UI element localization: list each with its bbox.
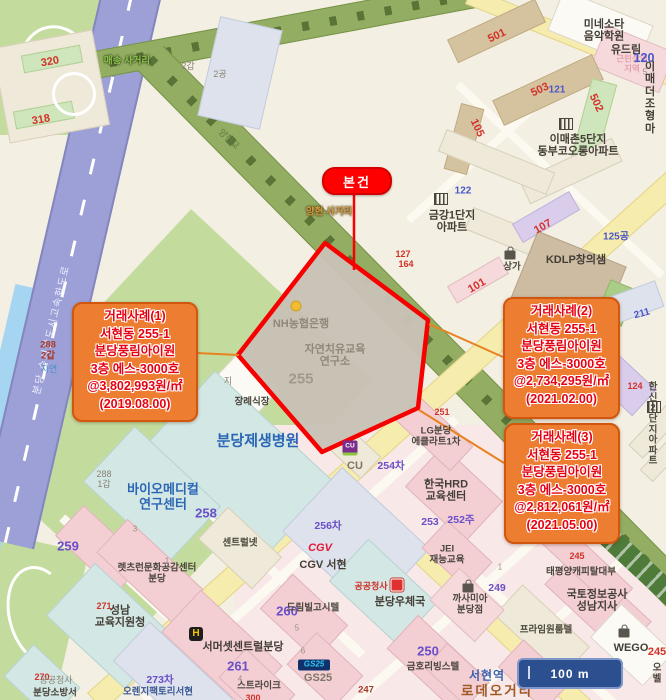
sale-case-line: (2021.02.00) — [506, 391, 617, 409]
sale-case-2-callout: 거래사례(2) 서현동 255-1분당풍림아이원3층 에스-3000호@2,73… — [503, 297, 620, 419]
map-canvas[interactable]: 3203182갑2공매송 사거리양현교양현 사거리분당 수서간도시고속화도로28… — [0, 0, 666, 700]
sale-case-line: 서현동 255-1 — [507, 447, 617, 465]
sale-case-line: 3층 에스-3000호 — [506, 356, 617, 374]
sale-case-details: 서현동 255-1분당풍림아이원3층 에스-3000호@2,734,295원/㎡… — [506, 321, 617, 409]
parcel-127: 127 — [395, 249, 410, 259]
sale-case-line: 서현동 255-1 — [75, 326, 195, 344]
sale-case-3-callout: 거래사례(3) 서현동 255-1분당풍림아이원3층 에스-3000호@2,81… — [504, 423, 620, 544]
parcel-122: 122 — [455, 185, 472, 196]
sale-case-1-callout: 거래사례(1) 서현동 255-1분당풍림아이원3층 에스-3000호@3,80… — [72, 302, 198, 422]
sale-case-line: 분당풍림아이원 — [75, 343, 195, 361]
sale-case-line: @2,734,295원/㎡ — [506, 373, 617, 391]
apt-icon-imaechon — [559, 118, 573, 130]
sale-case-line: 분당풍림아이원 — [507, 464, 617, 482]
sale-case-line: 분당풍림아이원 — [506, 338, 617, 356]
sale-case-line: 서현동 255-1 — [506, 321, 617, 339]
bag-icon-sangga — [505, 251, 516, 260]
sale-case-line: @3,802,993원/㎡ — [75, 378, 195, 396]
sale-case-line: (2021.05.00) — [507, 517, 617, 535]
sale-case-details: 서현동 255-1분당풍림아이원3층 에스-3000호@3,802,993원/㎡… — [75, 326, 195, 414]
driveway-circle — [52, 72, 96, 116]
parcel-164: 164 — [398, 259, 413, 269]
map-scale-bar: 100 m — [517, 658, 623, 689]
sale-case-line: @2,812,061원/㎡ — [507, 499, 617, 517]
scale-label: 100 m — [550, 667, 589, 681]
building — [447, 256, 509, 303]
sale-case-line: 3층 에스-3000호 — [75, 361, 195, 379]
sale-case-details: 서현동 255-1분당풍림아이원3층 에스-3000호@2,812,061원/㎡… — [507, 447, 617, 535]
sale-case-title: 거래사례(1) — [75, 308, 195, 326]
sale-case-title: 거래사례(3) — [507, 429, 617, 447]
sale-case-line: 3층 에스-3000호 — [507, 482, 617, 500]
sale-case-line: (2019.08.00) — [75, 396, 195, 414]
subject-label: 본건 — [322, 167, 392, 195]
sale-case-title: 거래사례(2) — [506, 303, 617, 321]
scale-tick — [528, 666, 530, 679]
